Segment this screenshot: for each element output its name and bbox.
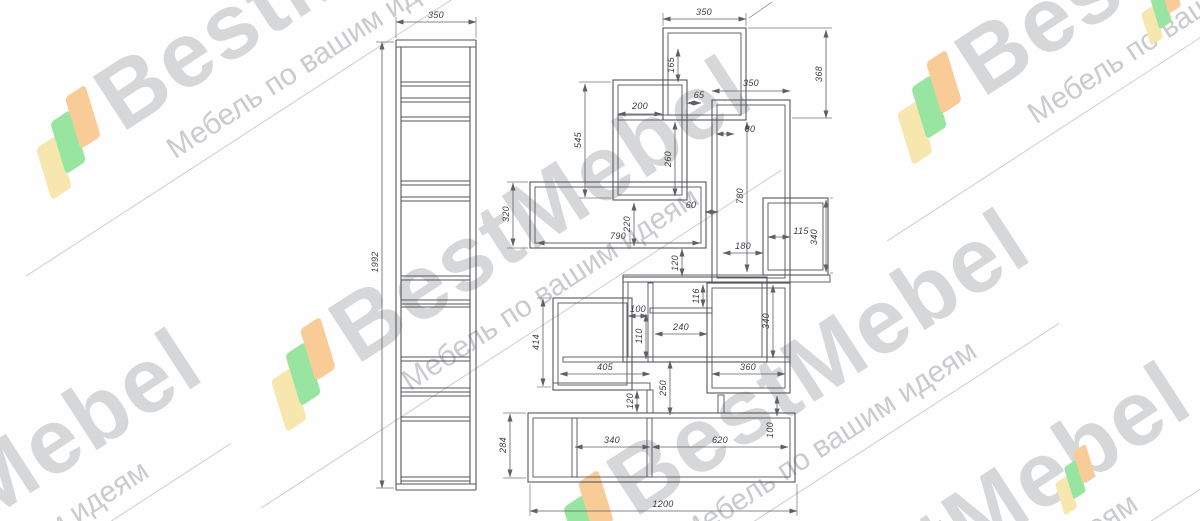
blueprint-canvas: BestMebelМебель по вашим идеямBestMebelМ…	[0, 0, 1200, 521]
side-view-outline	[396, 40, 476, 490]
extension-lines	[376, 2, 833, 516]
dimension-lines	[382, 19, 826, 511]
furniture-drawing	[0, 0, 1200, 521]
front-view-outline	[528, 28, 830, 482]
